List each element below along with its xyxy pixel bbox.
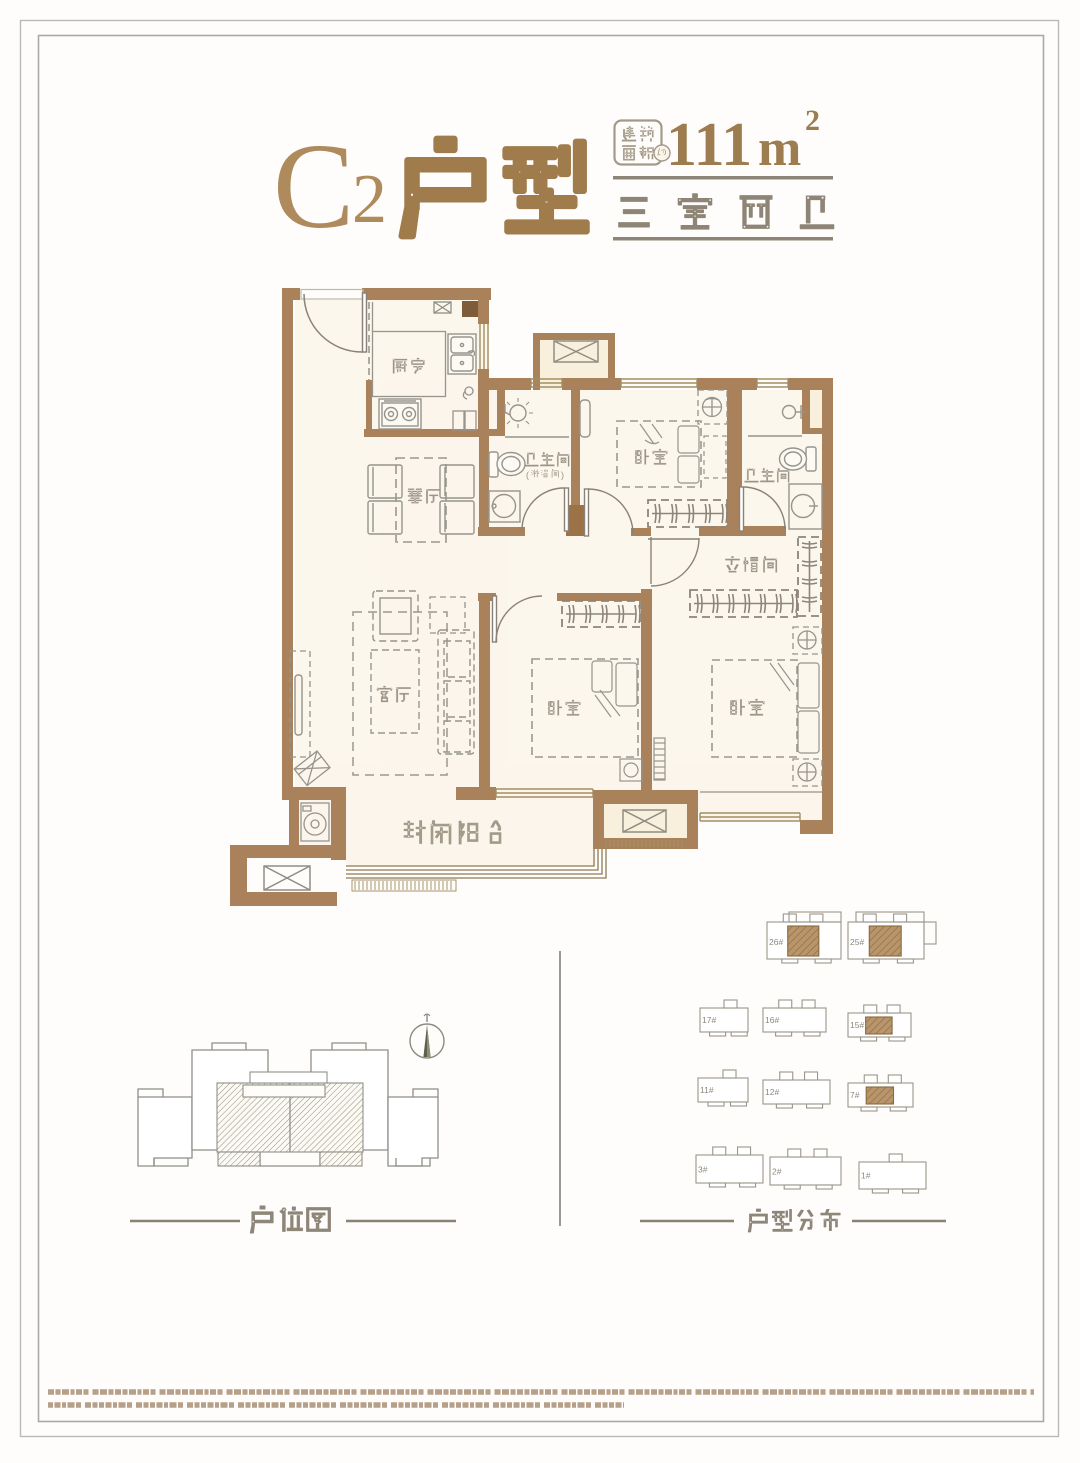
svg-text:25#: 25# <box>850 937 864 947</box>
svg-text:111: 111 <box>666 111 752 179</box>
svg-text:C: C <box>273 119 354 254</box>
svg-text:(: ( <box>526 470 529 480</box>
svg-text:3#: 3# <box>698 1164 708 1174</box>
svg-text:11#: 11# <box>700 1085 714 1095</box>
svg-text:2: 2 <box>352 161 387 238</box>
svg-text:7#: 7# <box>850 1090 860 1100</box>
svg-text:12#: 12# <box>765 1087 779 1097</box>
svg-text:16#: 16# <box>765 1015 779 1025</box>
svg-text:1#: 1# <box>861 1171 871 1181</box>
svg-text:15#: 15# <box>850 1020 864 1030</box>
svg-text:26#: 26# <box>769 937 783 947</box>
svg-text:m: m <box>758 120 801 177</box>
svg-text:): ) <box>561 470 564 480</box>
svg-text:17#: 17# <box>702 1015 716 1025</box>
svg-text:2: 2 <box>805 104 820 137</box>
svg-text:2#: 2# <box>772 1166 782 1176</box>
